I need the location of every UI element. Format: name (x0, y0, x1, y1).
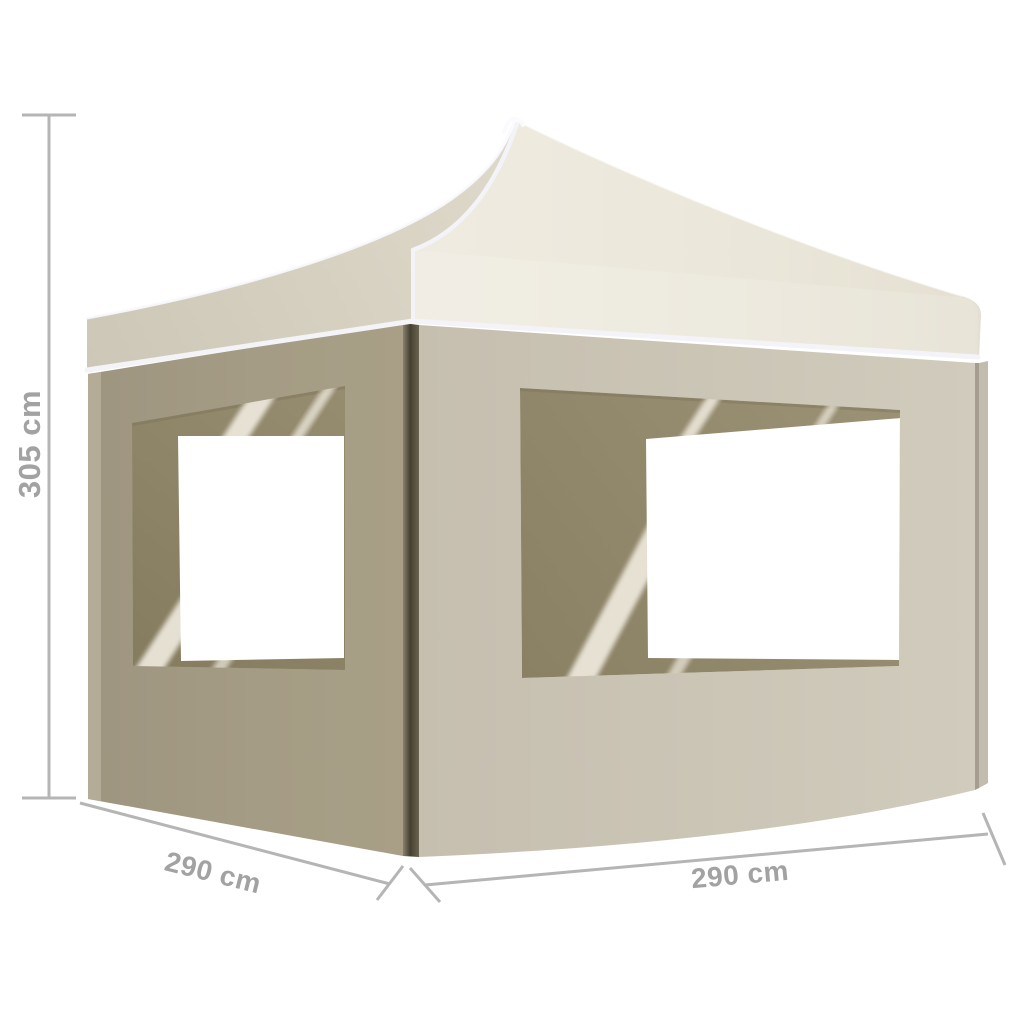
left-window-pane (178, 436, 344, 661)
height-dimension-label: 305 cm (12, 390, 48, 498)
front-window-pane (646, 418, 901, 660)
left-wall-edge-fold (88, 372, 101, 801)
tent-walls (88, 323, 988, 857)
corner-post (403, 323, 419, 857)
right-side-return (979, 361, 988, 788)
right-corner-seam (975, 363, 979, 790)
tent-illustration (0, 0, 1024, 1024)
product-dimension-image: 305 cm 290 cm 290 cm (0, 0, 1024, 1024)
